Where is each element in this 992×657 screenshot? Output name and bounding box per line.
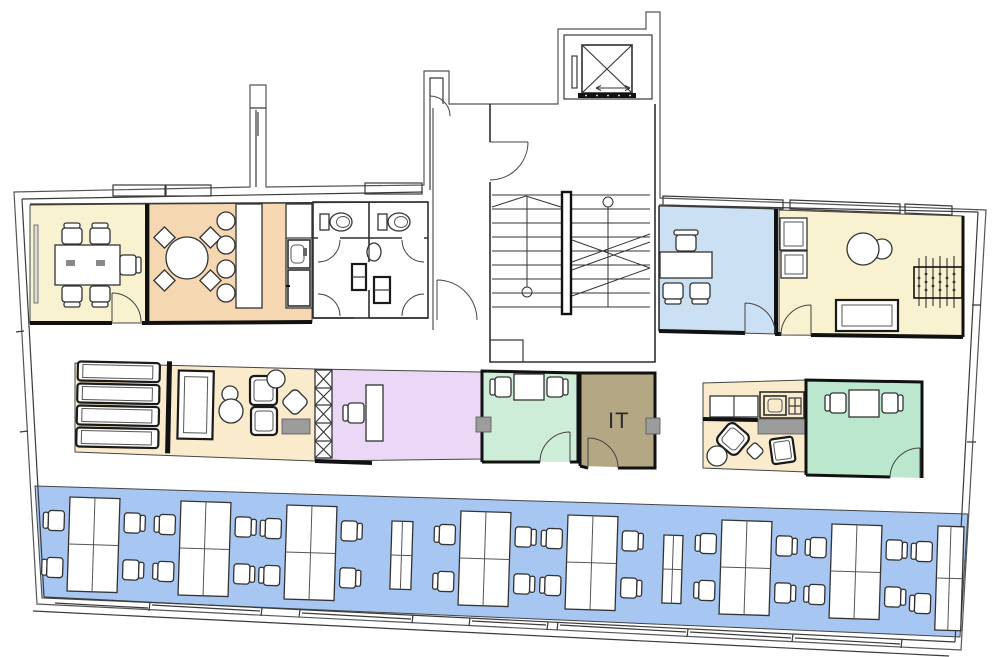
wall-counter	[703, 419, 758, 420]
task-chair-back	[674, 230, 698, 235]
whiteboard	[34, 225, 38, 303]
toilet	[378, 213, 410, 231]
pouf	[707, 446, 727, 466]
pouf	[267, 370, 285, 388]
stair-hall	[430, 45, 655, 362]
chair	[490, 377, 511, 397]
elevator	[572, 45, 636, 98]
stair-hall-door-arc	[490, 142, 528, 180]
stair-hall-walls	[490, 104, 655, 362]
pouf	[219, 399, 243, 423]
corridor	[430, 96, 477, 330]
kitchen-counter	[286, 204, 312, 308]
desk	[660, 252, 712, 278]
bar-stool	[217, 212, 235, 230]
vestibule-inner	[430, 78, 443, 190]
floor-plan-canvas: IT	[0, 0, 992, 657]
chair	[547, 377, 568, 397]
conference-table	[55, 245, 120, 285]
table-gromet	[96, 260, 105, 266]
locker-cabinet	[662, 535, 683, 604]
bar-counter	[236, 204, 262, 308]
bar-stool	[217, 260, 235, 278]
storage-shelf	[315, 370, 332, 458]
bar-stool	[217, 236, 235, 254]
chair	[882, 393, 903, 413]
elevator-cross	[582, 45, 632, 93]
bench-gray	[758, 419, 805, 434]
toilet	[320, 213, 352, 231]
staircase	[492, 192, 650, 314]
wall-bottom	[315, 461, 372, 463]
sink	[367, 242, 381, 262]
desk	[366, 385, 383, 441]
corridor-door-arc-bottom	[437, 280, 477, 320]
chair	[90, 223, 110, 244]
table	[849, 390, 879, 417]
chair	[62, 223, 82, 244]
wall-cabinet	[476, 417, 491, 432]
table	[514, 374, 544, 400]
chair	[120, 255, 141, 275]
chair	[825, 393, 846, 413]
elevator-indicator	[572, 56, 577, 88]
chimney-lines	[250, 108, 266, 187]
wall-bottom	[30, 322, 312, 323]
server-rack	[646, 418, 660, 434]
bar-stool	[217, 284, 235, 302]
chair	[663, 283, 683, 304]
chair	[90, 286, 110, 307]
round-table	[166, 237, 208, 279]
floor-cushion	[769, 436, 795, 464]
sofa	[177, 371, 213, 440]
task-chair	[676, 235, 696, 251]
it-room-label: IT	[608, 408, 630, 433]
inner-wall-top-left	[22, 192, 423, 199]
stair-hall-step	[490, 340, 523, 362]
room-focus-purple	[315, 369, 481, 461]
round-chair	[847, 233, 879, 265]
chair	[62, 286, 82, 307]
chair	[343, 403, 364, 423]
table-gromet	[66, 260, 75, 266]
coffee-table	[282, 419, 310, 434]
locker-cabinet	[390, 521, 413, 590]
stair-stringer	[562, 192, 571, 314]
chair	[690, 283, 710, 304]
office-floor-plan: IT	[0, 0, 992, 657]
